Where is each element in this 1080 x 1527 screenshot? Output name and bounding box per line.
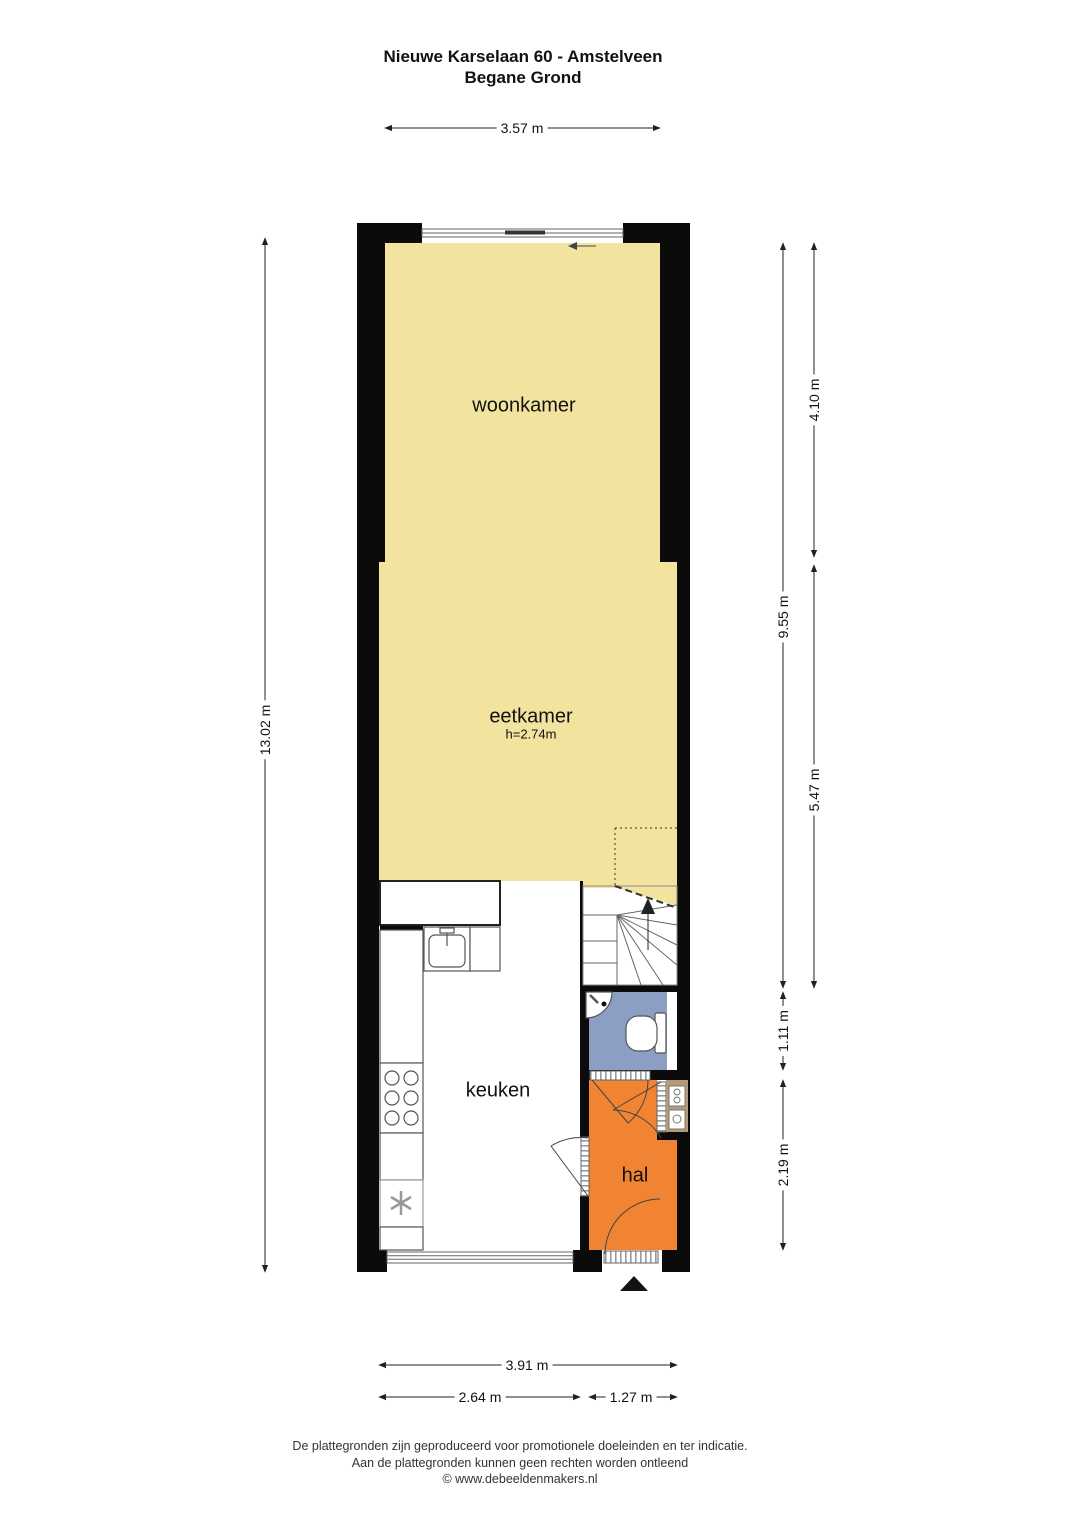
kitchen-window [387, 1252, 573, 1263]
stove-burner-icon [404, 1111, 418, 1125]
wall-segment [580, 1196, 589, 1250]
drain-dot-icon [602, 1002, 607, 1007]
dim-label-bottom-keuken: 2.64 m [455, 1389, 506, 1405]
room-label-eetkamer: eetkamer [489, 706, 572, 729]
wall-segment [677, 562, 690, 1250]
room-height-note: h=2.74m [506, 727, 557, 742]
wall-segment [660, 243, 690, 562]
floorplan-drawing [0, 0, 1080, 1527]
page-subtitle: Begane Grond [464, 68, 581, 88]
stove-burner-icon [404, 1071, 418, 1085]
wall-segment [657, 1132, 690, 1140]
toilet-door-threshold [590, 1071, 650, 1080]
wall-segment [357, 223, 422, 243]
wall-segment [623, 223, 690, 243]
kitchen-counter [380, 881, 500, 925]
stove-burner-icon [385, 1111, 399, 1125]
meter-box [669, 1110, 685, 1129]
page-title: Nieuwe Karselaan 60 - Amstelveen [383, 47, 662, 67]
floorplan-page: Nieuwe Karselaan 60 - Amstelveen Begane … [0, 0, 1080, 1527]
hal-area-lower [589, 1140, 677, 1250]
dim-label-right-hal: 2.19 m [775, 1140, 791, 1191]
entrance-arrow-icon [620, 1276, 648, 1291]
toilet-niche [667, 992, 677, 1070]
wall-segment [573, 1250, 602, 1272]
dim-label-top-width: 3.57 m [497, 120, 548, 136]
front-door-threshold [604, 1251, 658, 1263]
kitchen-fixtures [380, 881, 500, 1250]
wall-segment [357, 1250, 387, 1272]
dim-label-bottom-hal: 1.27 m [606, 1389, 657, 1405]
dim-label-left-total: 13.02 m [257, 701, 273, 760]
room-label-keuken: keuken [466, 1080, 531, 1103]
stove-burner-icon [385, 1091, 399, 1105]
wall-segment [357, 243, 385, 562]
dim-label-right-inner-total: 9.55 m [775, 592, 791, 643]
meter-closet-door-threshold [657, 1082, 666, 1132]
stove-burner-icon [404, 1091, 418, 1105]
kitchen-door-threshold [581, 1137, 589, 1196]
dim-label-right-woonkamer: 4.10 m [806, 375, 822, 426]
sliding-door-leaf [505, 231, 545, 235]
kitchen-counter [470, 927, 500, 971]
kitchen-counter [380, 930, 423, 1063]
dim-label-bottom-total: 3.91 m [502, 1357, 553, 1373]
toilet-bowl-icon [626, 1016, 657, 1051]
wall-segment [662, 1250, 690, 1272]
room-label-woonkamer: woonkamer [472, 395, 575, 418]
footer-disclaimer-1: De plattegronden zijn geproduceerd voor … [292, 1439, 747, 1453]
kitchen-counter [380, 1227, 423, 1250]
wall-segment [580, 985, 690, 992]
dim-label-right-eetkamer: 5.47 m [806, 765, 822, 816]
kitchen-faucet-icon [440, 928, 454, 933]
footer-copyright: © www.debeeldenmakers.nl [442, 1472, 597, 1486]
room-label-hal: hal [622, 1165, 649, 1188]
stove-burner-icon [385, 1071, 399, 1085]
dim-label-right-toilet: 1.11 m [775, 1006, 791, 1056]
wall-segment [357, 562, 379, 1272]
kitchen-counter [380, 1133, 423, 1180]
meter-closet [666, 1080, 688, 1132]
footer-disclaimer-2: Aan de plattegronden kunnen geen rechten… [352, 1456, 688, 1470]
